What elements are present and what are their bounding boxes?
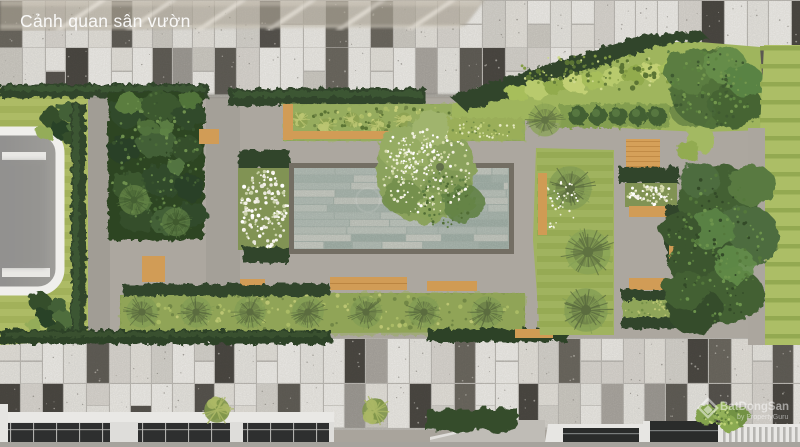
svg-text:by PropertyGuru: by PropertyGuru (737, 414, 788, 421)
svg-text:Cảnh quan sân vườn: Cảnh quan sân vườn (20, 11, 191, 31)
svg-text:BatDongSan: BatDongSan (720, 401, 789, 413)
